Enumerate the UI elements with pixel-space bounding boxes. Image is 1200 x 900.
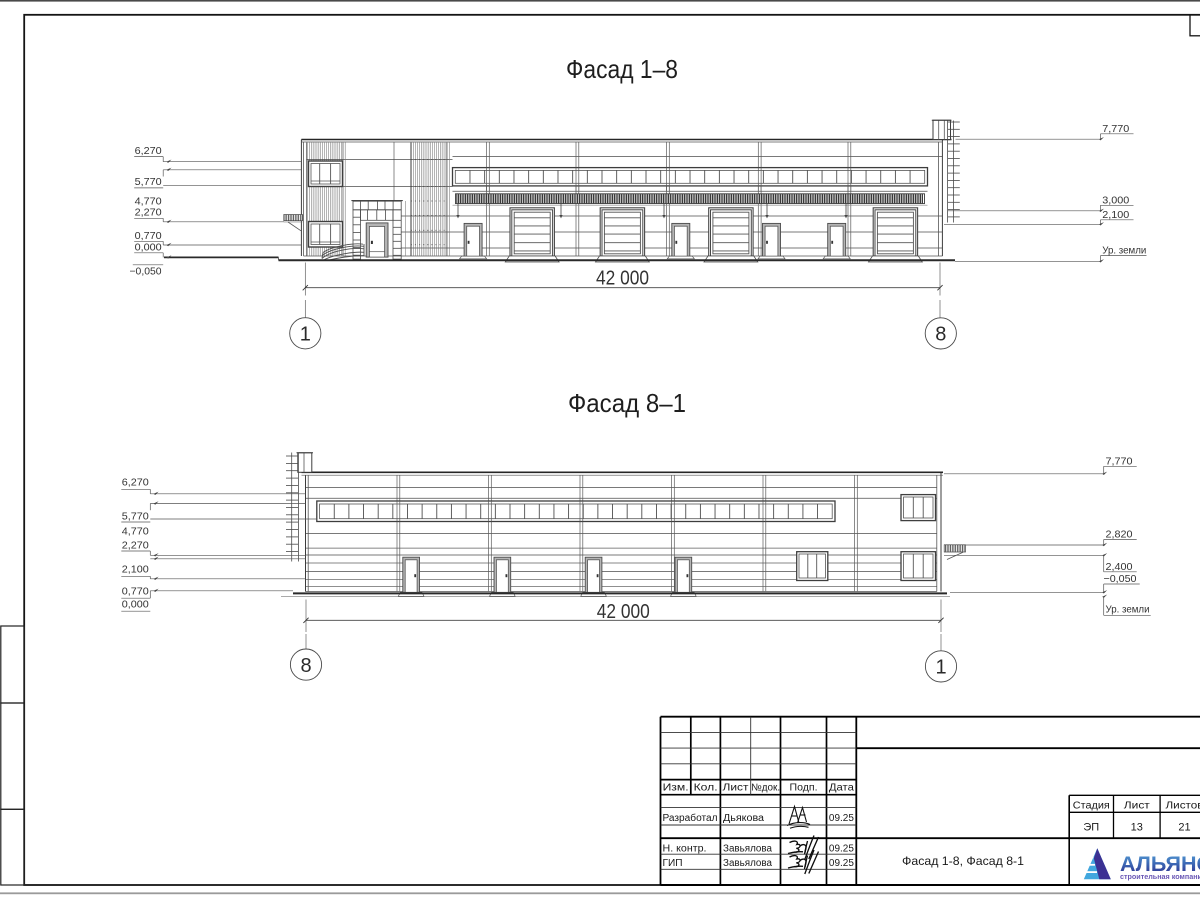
svg-text:42 000: 42 000 [596, 267, 649, 289]
svg-text:2,400: 2,400 [1106, 562, 1133, 573]
svg-text:09.25: 09.25 [829, 813, 855, 824]
svg-text:−0,050: −0,050 [130, 267, 162, 278]
svg-text:0,000: 0,000 [122, 599, 149, 610]
svg-text:4,770: 4,770 [122, 526, 149, 537]
svg-text:3,000: 3,000 [1102, 195, 1129, 206]
svg-text:09.25: 09.25 [829, 858, 855, 869]
svg-text:2,100: 2,100 [1102, 210, 1129, 221]
svg-text:09.25: 09.25 [829, 844, 855, 855]
svg-text:Фасад 1–8: Фасад 1–8 [566, 54, 678, 84]
svg-text:Дьякова: Дьякова [723, 813, 765, 824]
svg-text:№док.: №док. [751, 783, 780, 794]
svg-text:Стадия: Стадия [1073, 800, 1110, 811]
svg-text:8: 8 [300, 655, 311, 677]
svg-text:Ур. земли: Ур. земли [1102, 245, 1146, 256]
svg-text:Подп.: Подп. [790, 783, 818, 794]
svg-text:21: 21 [1178, 822, 1190, 834]
svg-text:7,770: 7,770 [1106, 456, 1133, 467]
svg-text:Лист: Лист [1124, 800, 1150, 811]
svg-text:1: 1 [935, 657, 946, 679]
svg-text:8: 8 [935, 323, 946, 345]
svg-text:42 000: 42 000 [597, 601, 650, 623]
svg-text:Листов: Листов [1166, 800, 1200, 811]
svg-text:Дата: Дата [829, 783, 854, 794]
svg-text:Лист: Лист [723, 783, 749, 794]
svg-text:0,770: 0,770 [122, 586, 149, 597]
svg-text:Фасад 1-8, Фасад 8-1: Фасад 1-8, Фасад 8-1 [902, 854, 1024, 868]
svg-text:1: 1 [300, 323, 311, 345]
svg-text:2,270: 2,270 [122, 540, 149, 551]
svg-text:7,770: 7,770 [1102, 124, 1129, 135]
svg-text:Кол.: Кол. [694, 783, 718, 794]
svg-text:13: 13 [1131, 822, 1143, 834]
svg-text:ЭП: ЭП [1083, 822, 1099, 834]
svg-text:−0,050: −0,050 [1104, 574, 1137, 585]
svg-text:5,770: 5,770 [122, 511, 149, 522]
svg-text:6,270: 6,270 [135, 146, 162, 157]
svg-text:ГИП: ГИП [663, 858, 683, 869]
svg-text:Завьялова: Завьялова [723, 858, 773, 869]
svg-text:6,270: 6,270 [122, 477, 149, 488]
svg-text:строительная компания «Альянс»: строительная компания «Альянс» [1120, 872, 1200, 881]
svg-text:Н. контр.: Н. контр. [663, 844, 707, 855]
svg-text:4,770: 4,770 [135, 196, 162, 207]
svg-text:0,770: 0,770 [135, 231, 162, 242]
svg-text:Фасад 8–1: Фасад 8–1 [568, 388, 686, 418]
svg-text:2,820: 2,820 [1106, 529, 1133, 540]
svg-text:2,100: 2,100 [122, 564, 149, 575]
svg-text:Разработал: Разработал [663, 813, 718, 824]
svg-text:Завьялова: Завьялова [723, 844, 773, 855]
svg-text:5,770: 5,770 [135, 177, 162, 188]
svg-text:Изм.: Изм. [663, 783, 689, 794]
svg-text:Ур. земли: Ур. земли [1106, 604, 1150, 615]
svg-text:0,000: 0,000 [135, 243, 162, 254]
svg-text:2,270: 2,270 [135, 208, 162, 219]
